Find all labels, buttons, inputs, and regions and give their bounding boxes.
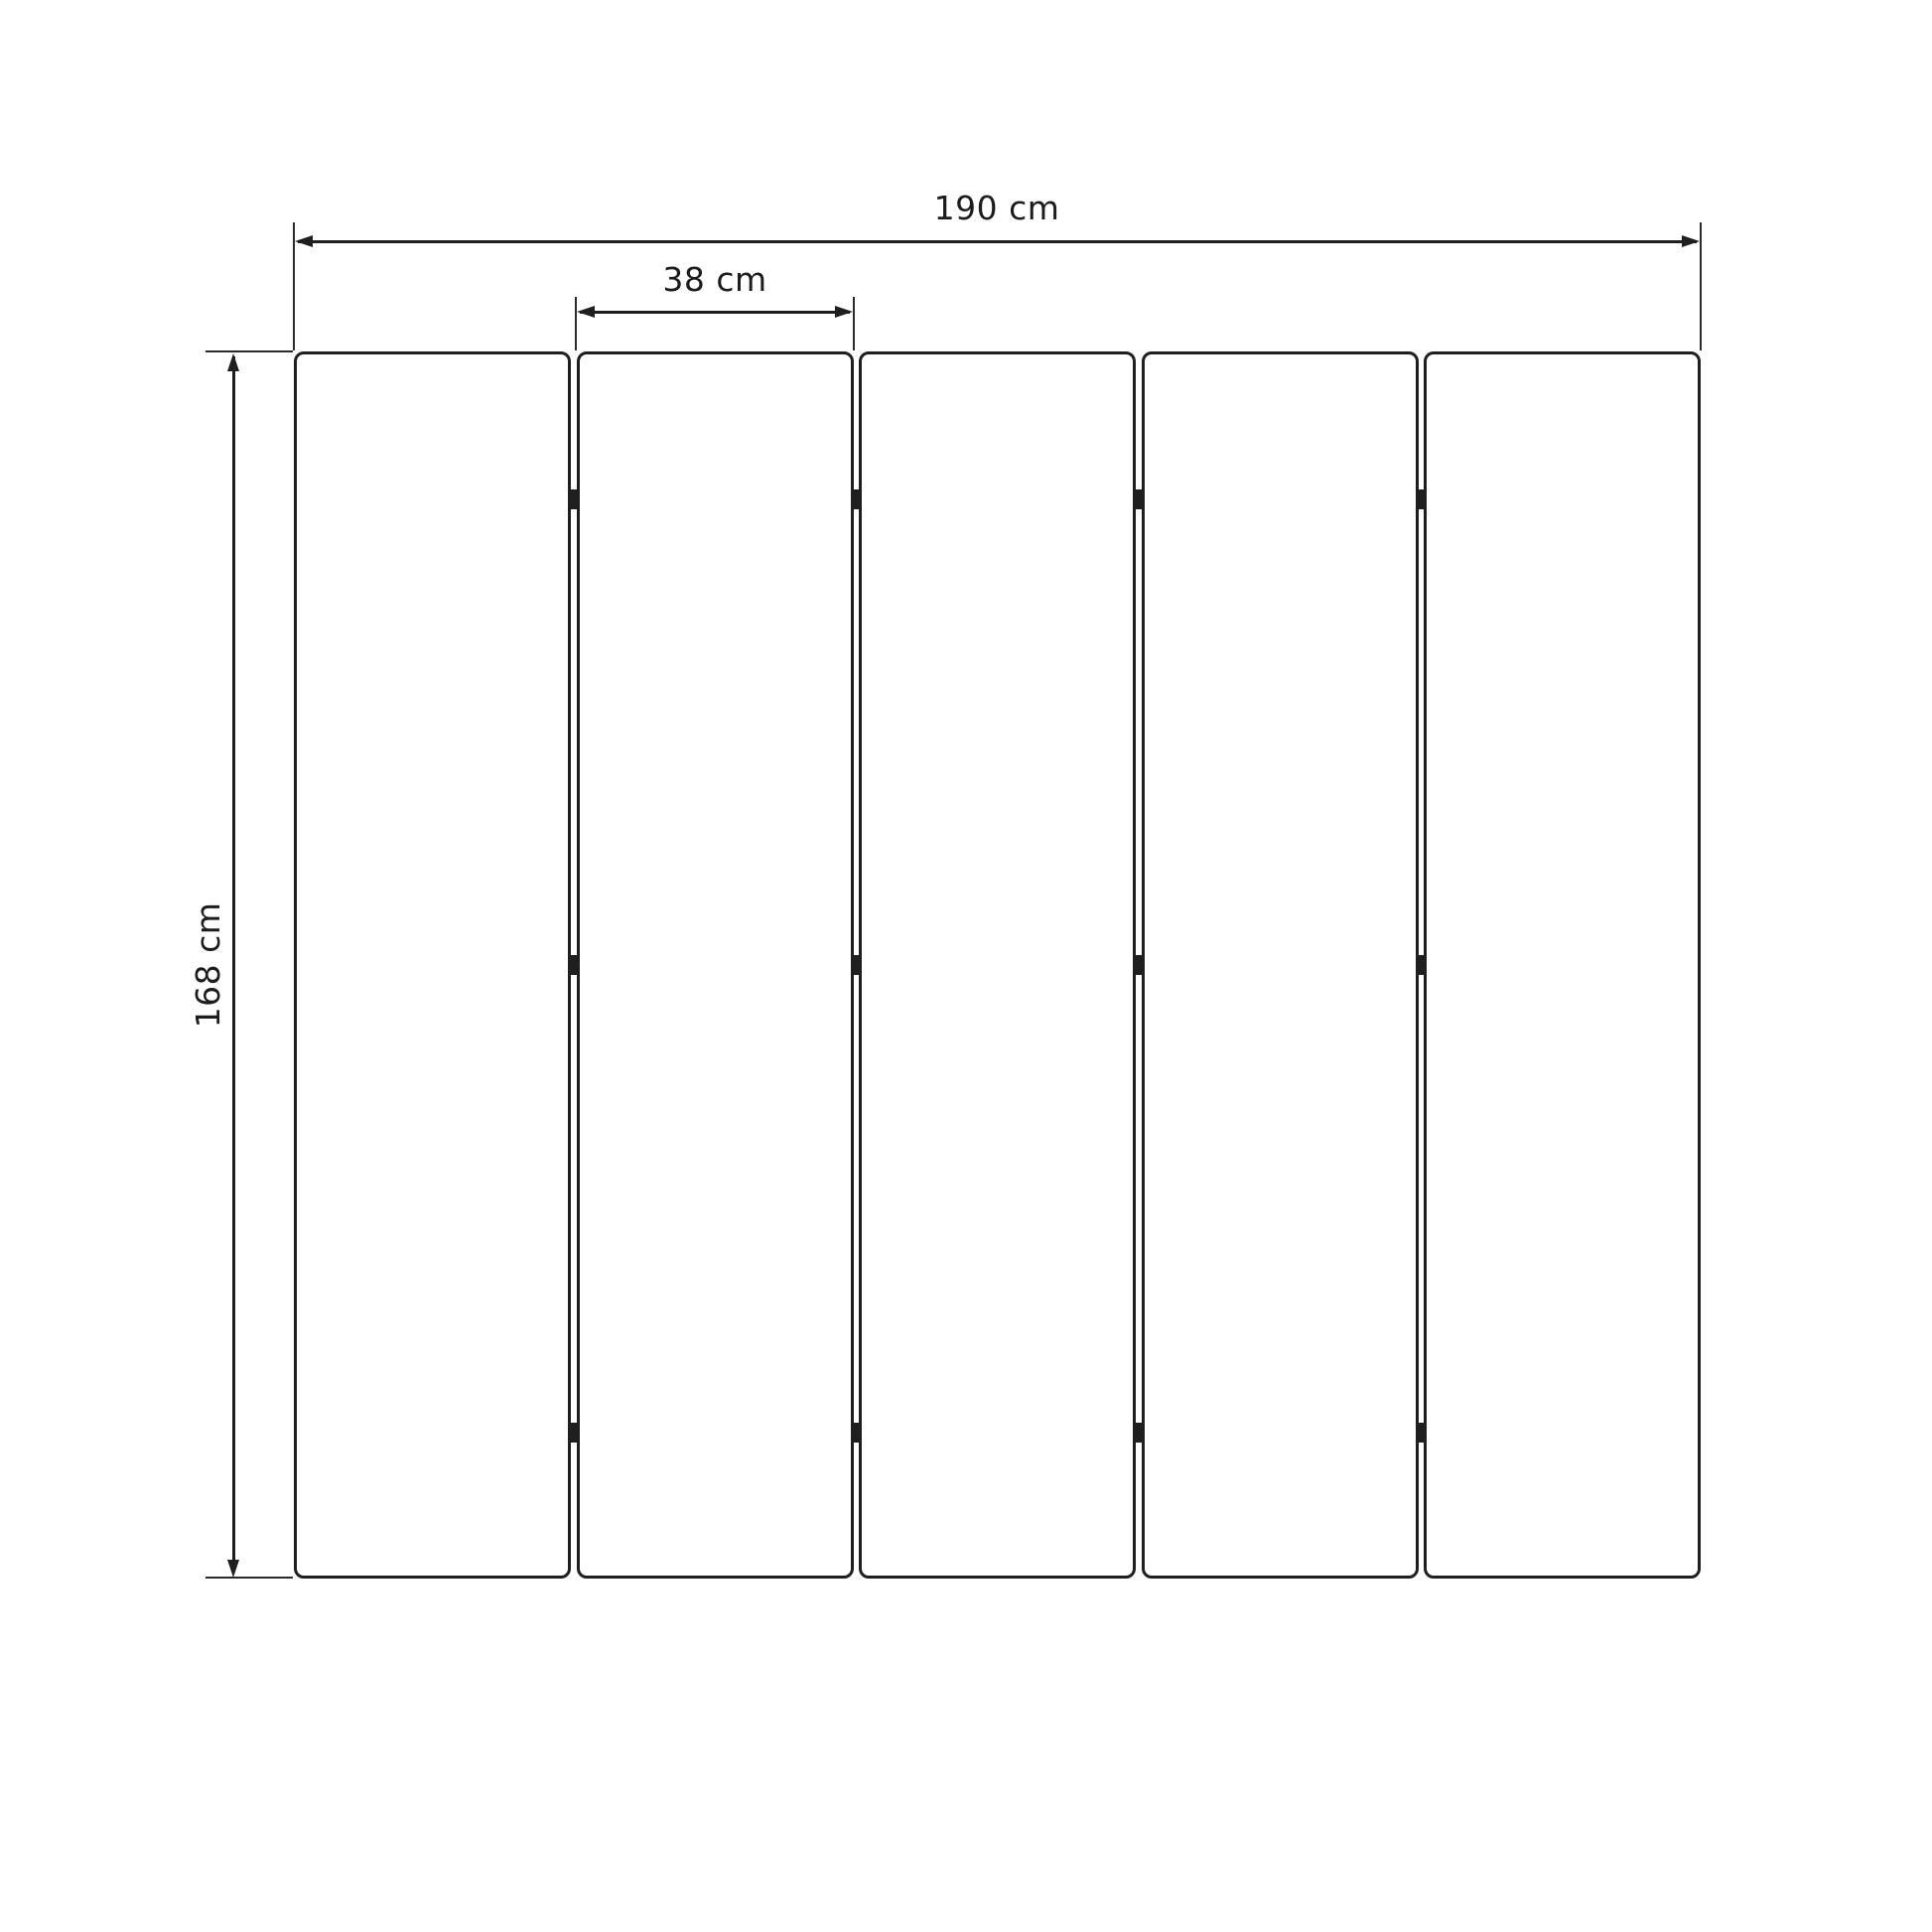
extension-line-panel-right [853,297,855,350]
arrow-left-icon [295,235,313,247]
arrow-up-icon [227,353,239,371]
hinge-icon [851,1423,861,1443]
hinge-icon [1134,489,1144,509]
hinge-icon [1417,955,1427,975]
arrow-down-icon [227,1560,239,1578]
hinge-icon [1134,1423,1144,1443]
hinge-icon [1417,1423,1427,1443]
extension-line-total-right [1700,222,1702,350]
panel-2 [577,351,854,1579]
dim-line-height [232,356,235,1572]
hinge-icon [851,489,861,509]
dim-line-panel-width [580,311,850,314]
arrow-right-icon [1682,235,1700,247]
hinge-icon [851,955,861,975]
hinge-icon [569,489,579,509]
hinge-icon [569,955,579,975]
arrow-left-icon [577,306,595,318]
dim-label-height: 168 cm [189,866,228,1064]
hinge-icon [1134,955,1144,975]
hinge-icon [569,1423,579,1443]
panel-1 [294,351,571,1579]
dim-label-total-width: 190 cm [897,189,1096,228]
extension-line-height-bottom [206,1577,293,1579]
panel-5 [1424,351,1701,1579]
panel-3 [859,351,1136,1579]
dimension-drawing-canvas: 190 cm 38 cm 168 cm [0,0,1932,1932]
dim-line-total-width [298,240,1697,243]
hinge-icon [1417,489,1427,509]
extension-line-height-top [206,350,293,352]
panel-4 [1142,351,1419,1579]
arrow-right-icon [835,306,853,318]
dim-label-panel-width: 38 cm [616,260,814,300]
